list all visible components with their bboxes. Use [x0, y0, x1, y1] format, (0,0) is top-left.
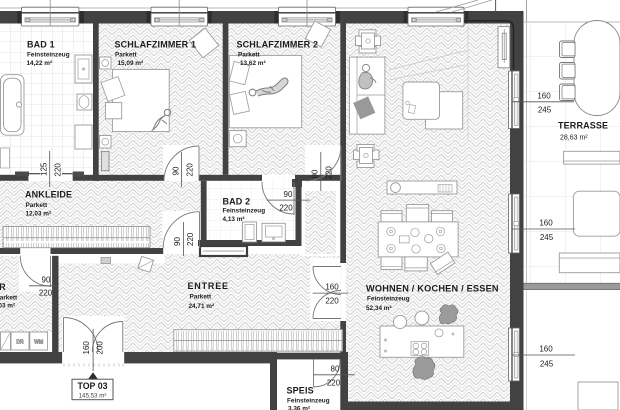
svg-text:TOP 03: TOP 03 [78, 381, 108, 391]
svg-text:160: 160 [82, 341, 91, 355]
svg-text:160: 160 [539, 345, 553, 354]
svg-text:Parkett: Parkett [115, 52, 138, 59]
svg-text:Feinsteinzeug: Feinsteinzeug [27, 52, 70, 59]
svg-text:ENTREE: ENTREE [188, 281, 229, 291]
svg-text:160: 160 [539, 219, 553, 228]
svg-text:DR: DR [16, 340, 24, 346]
svg-text:Parkett: Parkett [0, 295, 18, 302]
svg-text:WM: WM [34, 340, 43, 346]
svg-text:Feinsteinzeug: Feinsteinzeug [367, 296, 410, 303]
svg-text:Parkett: Parkett [190, 294, 213, 301]
svg-text:160: 160 [325, 283, 339, 292]
svg-text:80: 80 [331, 365, 340, 374]
svg-text:200: 200 [96, 341, 105, 355]
svg-text:220: 220 [54, 163, 63, 177]
svg-text:90: 90 [284, 190, 293, 199]
svg-text:245: 245 [540, 360, 554, 369]
svg-text:28,63 m²: 28,63 m² [560, 135, 588, 142]
svg-text:160: 160 [537, 92, 551, 101]
svg-text:SPEIS: SPEIS [287, 386, 314, 396]
svg-text:145,53 m²: 145,53 m² [79, 392, 107, 399]
svg-text:245: 245 [538, 106, 552, 115]
svg-text:14,22 m²: 14,22 m² [27, 60, 53, 67]
svg-text:Feinsteinzeug: Feinsteinzeug [223, 208, 266, 215]
svg-text:220: 220 [39, 289, 53, 298]
svg-text:90: 90 [42, 276, 51, 285]
svg-text:220: 220 [325, 297, 339, 306]
svg-text:Feinsteinzeug: Feinsteinzeug [287, 398, 330, 405]
svg-text:SCHLAFZIMMER 1: SCHLAFZIMMER 1 [115, 40, 197, 50]
svg-text:15,09 m²: 15,09 m² [118, 60, 144, 67]
svg-text:12,03 m²: 12,03 m² [0, 302, 15, 309]
svg-text:90: 90 [172, 166, 181, 175]
svg-text:TERRASSE: TERRASSE [558, 121, 608, 131]
svg-text:12,03 m²: 12,03 m² [26, 211, 52, 218]
svg-text:245: 245 [540, 233, 554, 242]
svg-text:220: 220 [327, 379, 341, 388]
svg-text:BAD 1: BAD 1 [27, 39, 55, 49]
svg-text:VR: VR [0, 282, 6, 292]
svg-text:SCHLAFZIMMER 2: SCHLAFZIMMER 2 [237, 40, 319, 50]
svg-text:125: 125 [40, 162, 49, 176]
svg-text:Parkett: Parkett [238, 52, 261, 59]
svg-text:220: 220 [186, 232, 195, 246]
svg-text:52,34 m²: 52,34 m² [366, 305, 392, 312]
svg-text:13,62 m²: 13,62 m² [240, 60, 266, 67]
svg-text:90: 90 [173, 237, 182, 246]
svg-text:3,36 m²: 3,36 m² [288, 406, 310, 410]
svg-text:BAD 2: BAD 2 [223, 197, 251, 207]
svg-text:ANKLEIDE: ANKLEIDE [25, 190, 72, 200]
svg-text:90: 90 [311, 169, 320, 178]
svg-text:4,13 m²: 4,13 m² [223, 216, 245, 223]
svg-text:220: 220 [279, 204, 293, 213]
svg-text:Parkett: Parkett [26, 202, 49, 209]
svg-text:WOHNEN / KOCHEN / ESSEN: WOHNEN / KOCHEN / ESSEN [366, 284, 499, 294]
svg-text:24,71 m²: 24,71 m² [189, 303, 215, 310]
svg-text:220: 220 [186, 163, 195, 177]
svg-text:220: 220 [325, 166, 334, 180]
